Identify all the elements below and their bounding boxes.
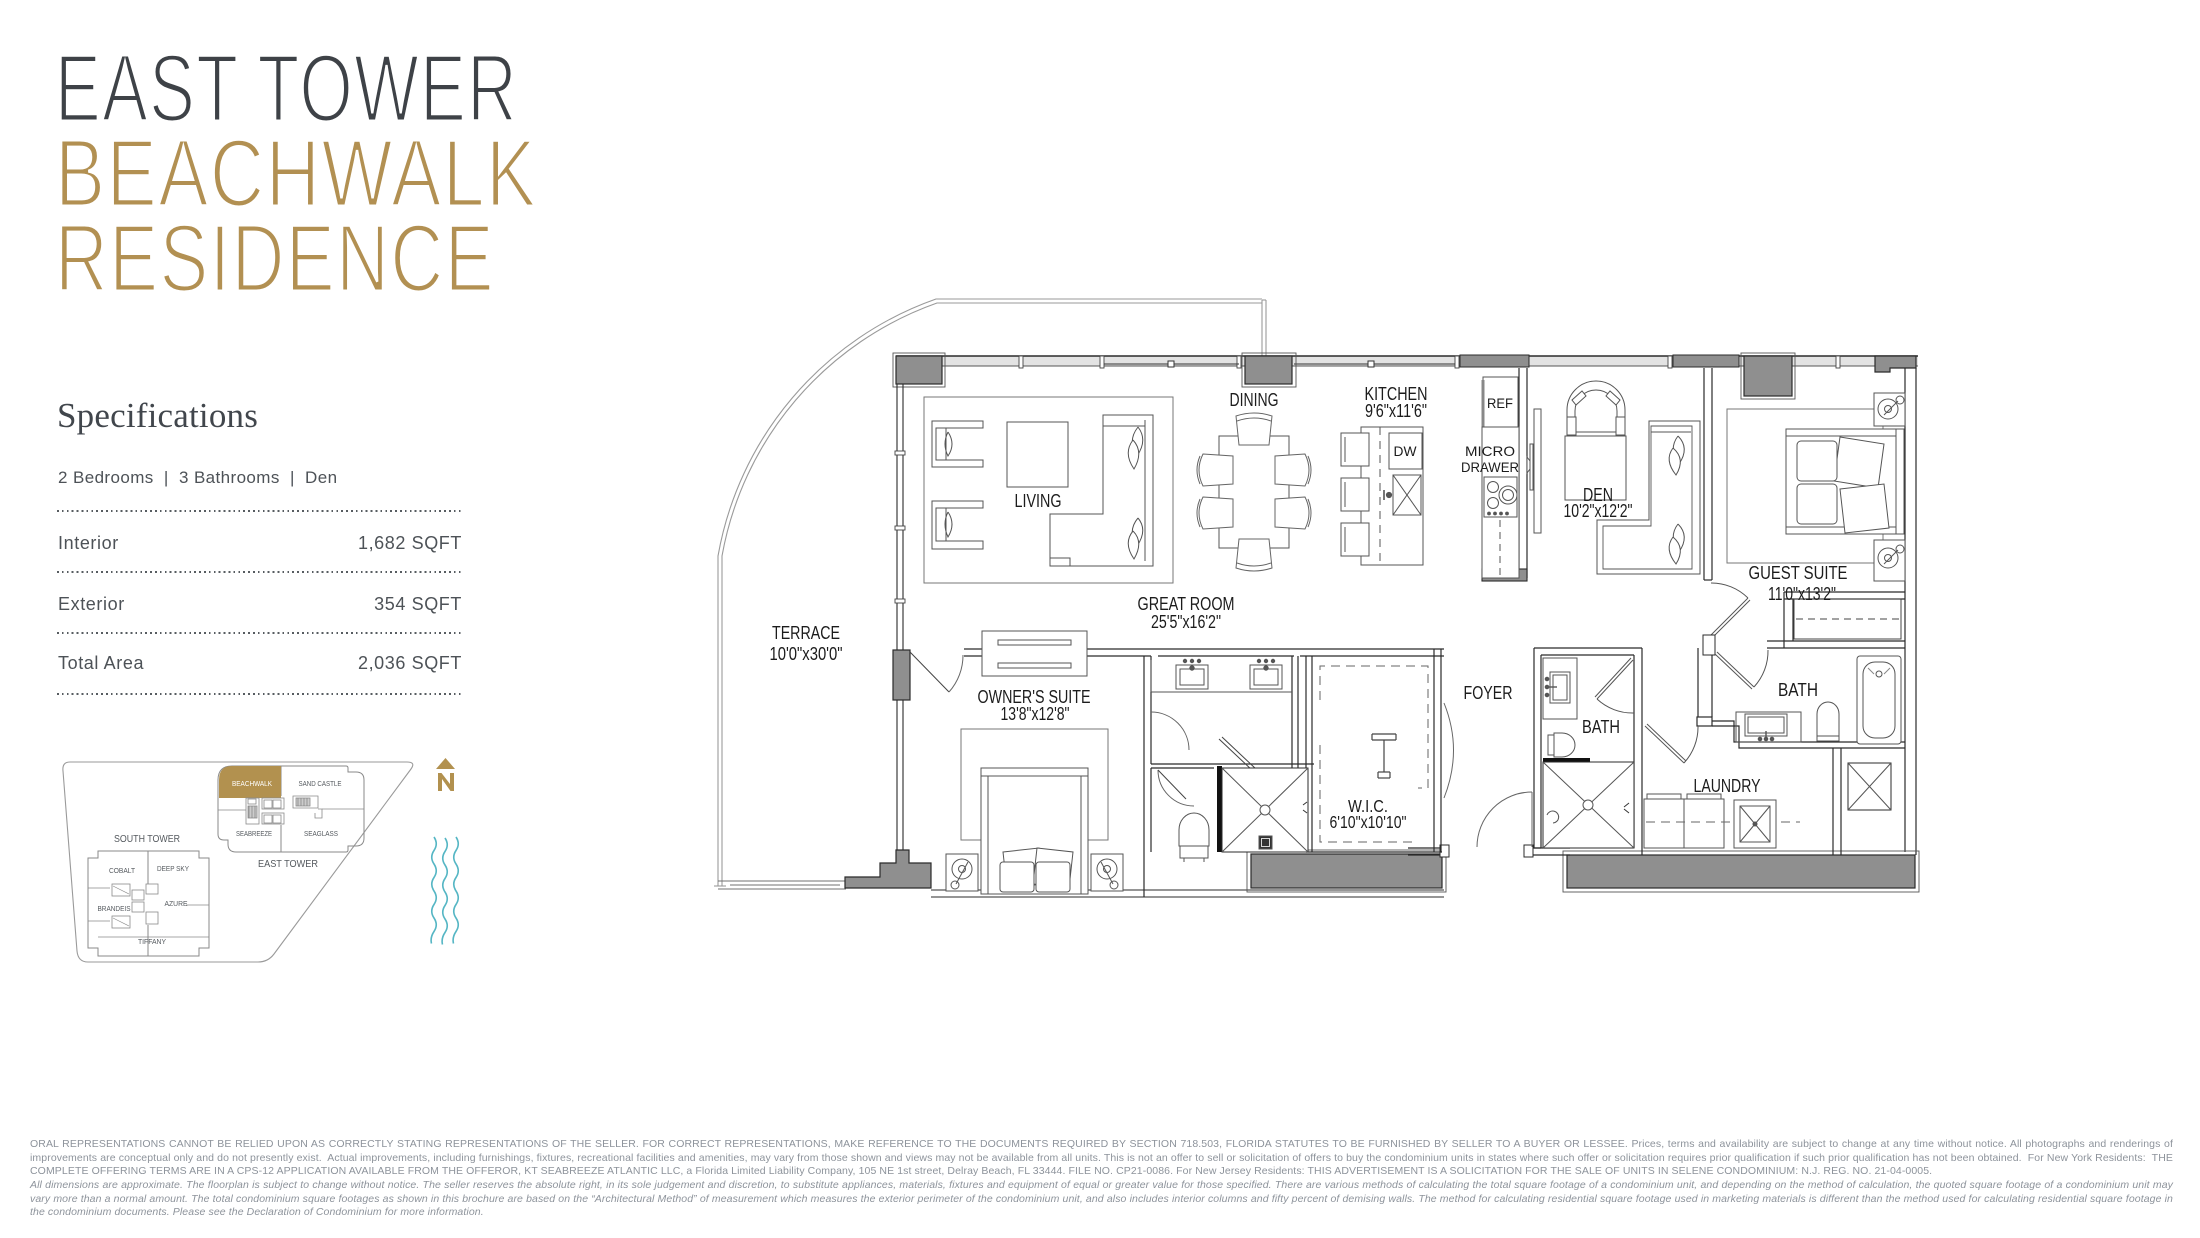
svg-text:BATH: BATH (1778, 680, 1818, 700)
svg-text:EAST TOWER: EAST TOWER (258, 858, 318, 870)
svg-text:13'8"x12'8": 13'8"x12'8" (1001, 704, 1070, 724)
svg-text:DINING: DINING (1230, 390, 1279, 410)
svg-text:SEABREEZE: SEABREEZE (236, 829, 272, 838)
svg-text:REF: REF (1487, 395, 1513, 411)
svg-text:25'5"x16'2": 25'5"x16'2" (1151, 612, 1221, 632)
svg-text:DEEP SKY: DEEP SKY (157, 864, 189, 873)
svg-text:TERRACE: TERRACE (772, 623, 840, 643)
svg-text:9'6"x11'6": 9'6"x11'6" (1365, 401, 1427, 421)
svg-text:10'0"x30'0": 10'0"x30'0" (770, 644, 843, 664)
svg-text:DW: DW (1394, 443, 1418, 459)
svg-text:GREAT ROOM: GREAT ROOM (1138, 594, 1235, 614)
svg-text:MICRO: MICRO (1465, 443, 1515, 459)
svg-text:10'2"x12'2": 10'2"x12'2" (1564, 501, 1633, 521)
svg-text:AZURE: AZURE (165, 899, 188, 908)
svg-text:DRAWER: DRAWER (1461, 459, 1519, 475)
svg-text:LAUNDRY: LAUNDRY (1694, 776, 1761, 796)
svg-text:SOUTH TOWER: SOUTH TOWER (114, 834, 180, 845)
svg-text:LIVING: LIVING (1015, 491, 1062, 511)
svg-text:BRANDEIS: BRANDEIS (98, 904, 131, 913)
svg-text:FOYER: FOYER (1464, 683, 1513, 703)
svg-text:COBALT: COBALT (109, 866, 136, 875)
svg-text:BATH: BATH (1582, 717, 1620, 737)
svg-text:SEAGLASS: SEAGLASS (304, 829, 338, 838)
svg-text:GUEST SUITE: GUEST SUITE (1749, 563, 1848, 583)
svg-text:11'0"x13'2": 11'0"x13'2" (1768, 584, 1836, 604)
svg-text:6'10"x10'10": 6'10"x10'10" (1330, 812, 1407, 832)
svg-text:SAND CASTLE: SAND CASTLE (299, 779, 342, 788)
svg-text:BEACHWALK: BEACHWALK (232, 779, 272, 788)
svg-text:TIFFANY: TIFFANY (138, 937, 166, 946)
